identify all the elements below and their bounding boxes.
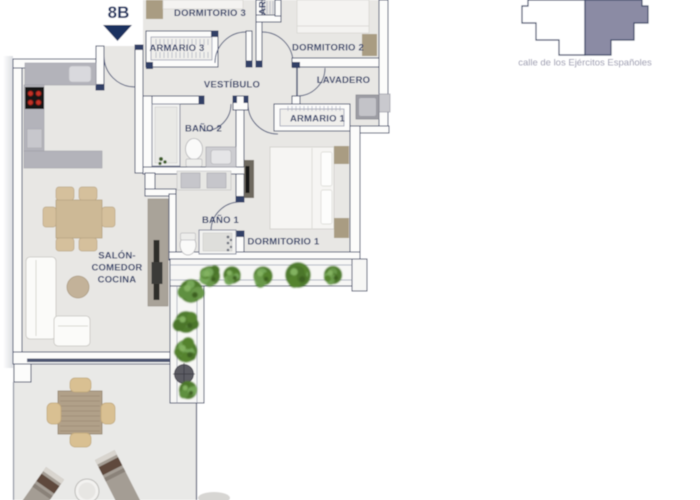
svg-text:DORMITORIO 3: DORMITORIO 3 xyxy=(174,8,246,19)
svg-text:BAÑO 2: BAÑO 2 xyxy=(185,124,222,135)
svg-text:VESTÍBULO: VESTÍBULO xyxy=(204,80,260,91)
svg-text:ARMARIO 3: ARMARIO 3 xyxy=(149,43,204,54)
svg-text:COMEDOR: COMEDOR xyxy=(91,263,142,274)
svg-text:ARMARIO 1: ARMARIO 1 xyxy=(290,114,346,125)
svg-text:SALÓN-: SALÓN- xyxy=(98,250,136,262)
svg-text:DORMITORIO 1: DORMITORIO 1 xyxy=(248,237,320,248)
svg-text:BAÑO 1: BAÑO 1 xyxy=(202,215,240,226)
svg-text:ARMARIO: ARMARIO xyxy=(258,0,269,15)
svg-text:calle de los Ejércitos Español: calle de los Ejércitos Españoles xyxy=(518,58,652,69)
svg-text:COCINA: COCINA xyxy=(98,275,137,286)
svg-text:8B: 8B xyxy=(108,3,130,22)
svg-text:LAVADERO: LAVADERO xyxy=(317,75,371,86)
svg-text:DORMITORIO 2: DORMITORIO 2 xyxy=(292,43,364,54)
